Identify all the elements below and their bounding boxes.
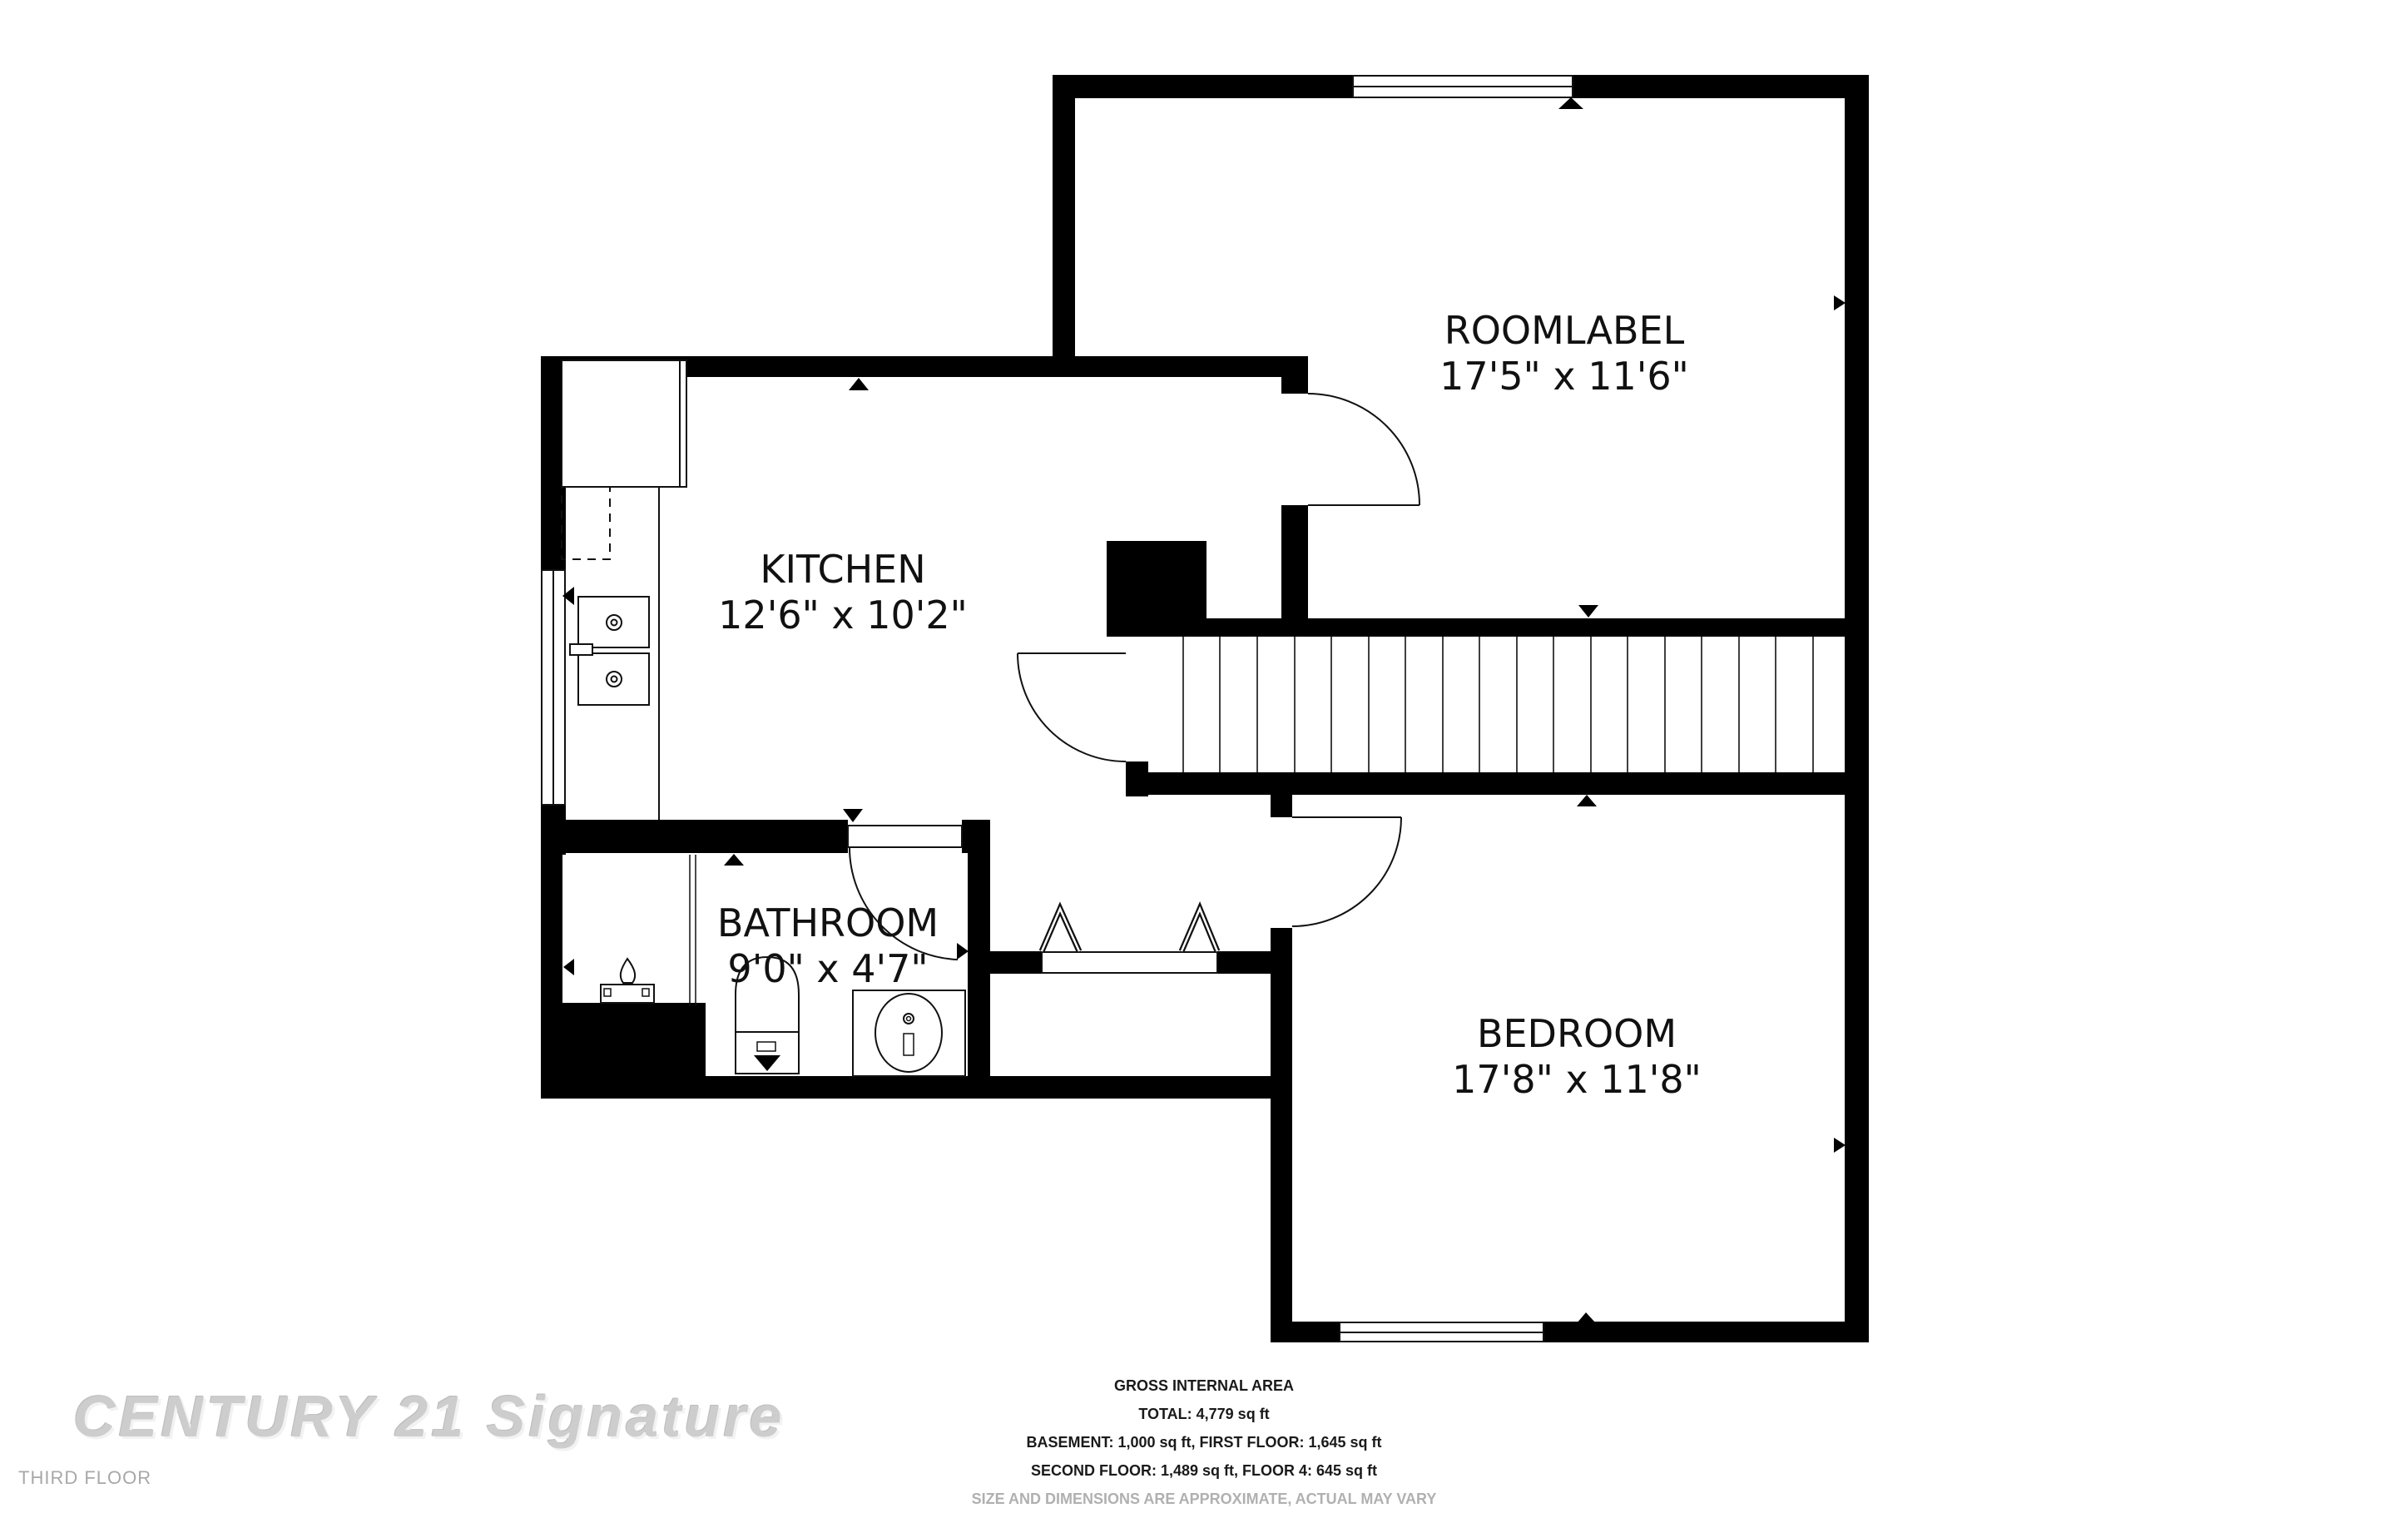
brand-watermark: CENTURY 21 Signature [73, 1383, 1072, 1450]
marker-triangle [849, 378, 869, 390]
chimney-block [1107, 541, 1206, 637]
wall-segment [1147, 772, 1845, 795]
bathroom-sink-detail [604, 989, 611, 996]
wall-segment [541, 1076, 1292, 1099]
wall-segment [1845, 75, 1869, 1342]
wall-segment [1271, 795, 1292, 817]
marker-triangle [1558, 97, 1583, 109]
wall-segment [962, 820, 990, 853]
wall-segment [1126, 761, 1148, 796]
bathroom-faucet [621, 959, 635, 983]
marker-triangle [957, 943, 969, 960]
wall-segment [990, 951, 1042, 974]
marker-triangle [1834, 1138, 1846, 1153]
window-kitchen-west [542, 570, 565, 805]
closet-rail [1042, 909, 1217, 973]
marker-triangle [724, 854, 744, 866]
kitchen-faucet [570, 644, 592, 655]
room-label-kitchen: KITCHEN [760, 547, 925, 592]
door-bedroom [1292, 817, 1401, 926]
marker-triangle [1578, 605, 1598, 618]
room-dims-roomlabel: 17'5" x 11'6" [1439, 354, 1689, 399]
wall-segment [1281, 356, 1308, 394]
wall-segment [1206, 618, 1845, 637]
marker-triangle [1834, 295, 1846, 310]
wall-segment [1543, 1322, 1869, 1342]
direction-markers [562, 97, 1846, 1323]
kitchen-sink-basin [578, 597, 649, 647]
area-summary-line: SECOND FLOOR: 1,489 sq ft, FLOOR 4: 645 … [972, 1456, 1437, 1485]
window-bedroom-south [1340, 1322, 1543, 1342]
wall-segment [1281, 505, 1308, 637]
room-dims-bedroom: 17'8" x 11'8" [1452, 1057, 1702, 1102]
door-roomlabel [1308, 394, 1420, 505]
toilet-flush [757, 1042, 775, 1051]
room-label-roomlabel: ROOMLABEL [1444, 308, 1685, 353]
doors [848, 394, 1420, 960]
wall-segment [1053, 98, 1075, 358]
kitchen-counter [562, 360, 686, 487]
room-dims-bathroom: 9'0" x 4'7" [727, 946, 928, 991]
wall-segment [1053, 75, 1353, 98]
room-dims-kitchen: 12'6" x 10'2" [718, 593, 968, 637]
area-summary: GROSS INTERNAL AREA TOTAL: 4,779 sq ft B… [972, 1372, 1437, 1513]
door-landing [1018, 653, 1126, 761]
staircase [1183, 637, 1813, 772]
wall-segment [1271, 928, 1292, 1342]
bathroom-sink-detail [642, 989, 649, 996]
wall-segment [541, 820, 848, 853]
marker-triangle [1577, 1312, 1596, 1323]
floorplan-page: { "rooms": [ { "name": "ROOMLABEL", "dim… [0, 0, 2408, 1505]
area-summary-heading: GROSS INTERNAL AREA [972, 1372, 1437, 1400]
window-top [1353, 76, 1573, 97]
marker-triangle [563, 959, 574, 975]
walls [541, 75, 1869, 1342]
shower-handle [904, 1034, 914, 1055]
room-label-bedroom: BEDROOM [1477, 1011, 1677, 1056]
wall-segment [1271, 1322, 1340, 1342]
wall-segment [1573, 75, 1869, 98]
area-summary-total: TOTAL: 4,779 sq ft [972, 1400, 1437, 1428]
kitchen-sink-basin [578, 653, 649, 705]
floor-name-label: THIRD FLOOR [18, 1467, 151, 1489]
wall-segment [1217, 951, 1271, 974]
wall-segment [968, 820, 990, 1099]
room-label-bathroom: BATHROOM [717, 900, 939, 945]
area-summary-disclaimer: SIZE AND DIMENSIONS ARE APPROXIMATE, ACT… [972, 1485, 1437, 1513]
floorplan-drawing: ROOMLABEL 17'5" x 11'6" KITCHEN 12'6" x … [0, 0, 2408, 1505]
marker-triangle [1577, 795, 1597, 806]
area-summary-line: BASEMENT: 1,000 sq ft, FIRST FLOOR: 1,64… [972, 1428, 1437, 1456]
kitchen-fixtures [562, 360, 686, 820]
kitchen-appliance-dashed [562, 487, 610, 559]
